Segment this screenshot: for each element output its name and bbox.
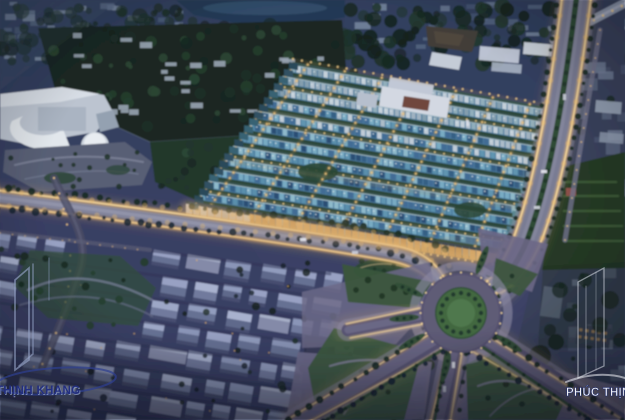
svg-text:PHÚC THỊNH: PHÚC THỊNH (566, 386, 625, 399)
svg-text:THỊNH KHANG: THỊNH KHANG (0, 384, 80, 397)
